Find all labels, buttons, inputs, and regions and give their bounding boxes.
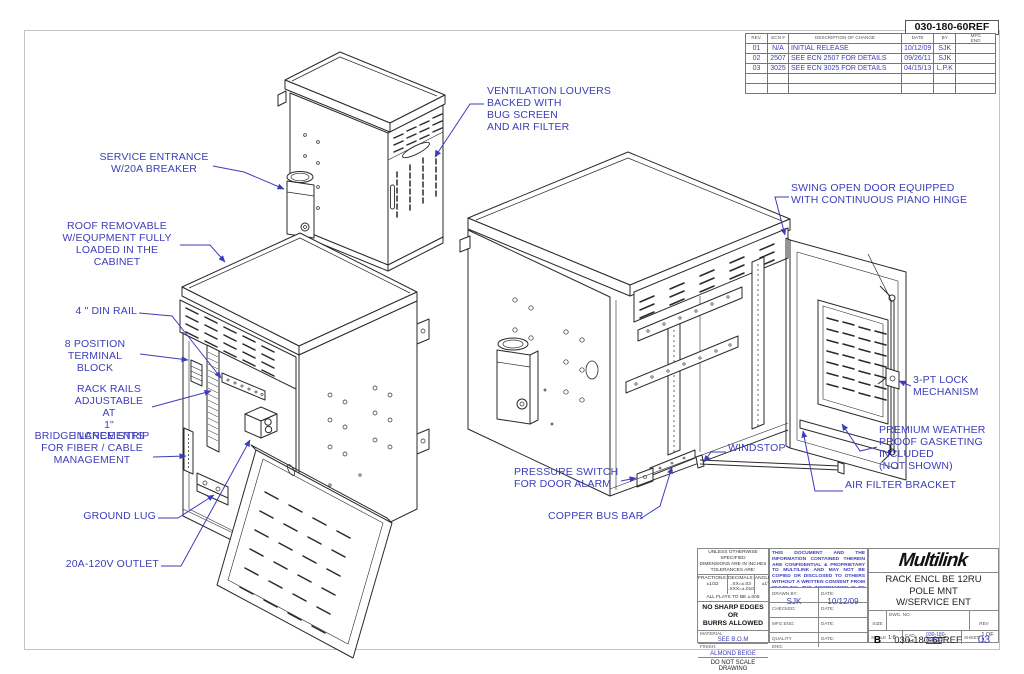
- pole-mount-bracket: [417, 429, 429, 454]
- checked-label: CHECKED:: [772, 606, 796, 611]
- rev-label: REV: [979, 621, 988, 626]
- rev-cell: 03: [746, 64, 768, 74]
- material-value: SEE B.O.M: [700, 637, 766, 644]
- desc-cell: SEE ECN 3025 FOR DETAILS: [789, 64, 902, 74]
- drawing-sheet: { "colors": { "callout_blue": "#3d3dba",…: [0, 0, 1024, 663]
- date-cell: [902, 74, 934, 84]
- leader-pressure-switch: [621, 478, 636, 481]
- ecn-cell: 3025: [768, 64, 789, 74]
- callout-swing-door: SWING OPEN DOOR EQUIPPED WITH CONTINUOUS…: [791, 183, 1006, 207]
- do-not-scale-note: DO NOT SCALE DRAWING: [698, 657, 768, 674]
- by-cell: SJK: [934, 54, 956, 64]
- table-row: [746, 74, 996, 84]
- ecn-cell: [768, 84, 789, 94]
- desc-cell: SEE ECN 2507 FOR DETAILS: [789, 54, 902, 64]
- callout-pressure-switch: PRESSURE SWITCH FOR DOOR ALARM: [514, 467, 619, 491]
- copper-bus-bar: [650, 450, 695, 476]
- by-cell: SJK: [934, 44, 956, 54]
- callout-bridge-lance: BRIDGE LANCE STRIP FOR FIBER / CABLE MAN…: [33, 431, 151, 467]
- leader-ground-lug: [158, 495, 214, 518]
- date-cell: 04/15/13: [902, 64, 934, 74]
- rev-cell: [746, 74, 768, 84]
- tolerance-grid: FRACTIONS: ±1/32 DECIMALS: .XX=±.03 .XXX…: [698, 574, 768, 594]
- title-block: Multilink RACK ENCL BE 12RU POLE MNT W/S…: [868, 548, 999, 643]
- rev-cell: 01: [746, 44, 768, 54]
- date-label: DATE:: [821, 621, 834, 626]
- callout-copper-bus-bar: COPPER BUS BAR: [548, 511, 648, 523]
- tolerance-header: UNLESS OTHERWISE SPECIFIED DIMENSIONS AR…: [698, 549, 768, 574]
- din-rail: [626, 336, 738, 393]
- desc-cell: INITIAL RELEASE: [789, 44, 902, 54]
- dwg-no-label: DWG. NO.: [889, 612, 911, 617]
- mfg-cell: [956, 74, 996, 84]
- rev-cell: [746, 84, 768, 94]
- callout-ground-lug: GROUND LUG: [80, 511, 156, 523]
- windstop-bar: [696, 455, 844, 474]
- callout-windstop: WINDSTOP: [728, 443, 803, 455]
- material-label: MATERIAL:: [700, 631, 724, 636]
- bridge-lance-strip: [184, 428, 193, 474]
- callout-gasketing: PREMIUM WEATHER PROOF GASKETING INCLUDED…: [879, 425, 991, 472]
- ecn-cell: [768, 74, 789, 84]
- dwg-no-value: 030-180-60REF: [894, 635, 962, 646]
- col-desc: DESCRIPTION OF CHANGE: [789, 34, 902, 44]
- flats-note: ALL FLATS TO BE ±.005: [698, 594, 768, 601]
- tolerance-notes-block: UNLESS OTHERWISE SPECIFIED DIMENSIONS AR…: [697, 548, 769, 643]
- revision-table-header: REV. ECN # DESCRIPTION OF CHANGE DATE BY…: [746, 34, 996, 44]
- table-row: 02 2507 SEE ECN 2507 FOR DETAILS 09/26/1…: [746, 54, 996, 64]
- col-ecn: ECN #: [768, 34, 789, 44]
- mfg-cell: [956, 44, 996, 54]
- leader-terminal: [140, 354, 188, 360]
- cabinet-view-open-front: [180, 233, 429, 658]
- checked-row: CHECKED: DATE:: [770, 603, 867, 618]
- mfg-cell: [956, 64, 996, 74]
- pressure-switch: [637, 468, 653, 487]
- drawing-title-row: RACK ENCL BE 12RU POLE MNT W/SERVICE ENT: [869, 573, 998, 611]
- pole-mount-bracket: [417, 319, 429, 344]
- leader-rack-rails: [152, 391, 211, 407]
- confidentiality-notice: THIS DOCUMENT AND THE INFORMATION CONTAI…: [770, 549, 867, 588]
- material-row: MATERIAL: SEE B.O.M: [698, 630, 768, 644]
- size-label: SIZE: [872, 621, 882, 626]
- logo-row: Multilink: [869, 549, 998, 573]
- by-cell: L.P.K: [934, 64, 956, 74]
- date-label: DATE:: [821, 606, 834, 611]
- outlet-box: [245, 407, 277, 438]
- tolerance-fractions: FRACTIONS: ±1/32: [698, 575, 727, 594]
- by-cell: [934, 74, 956, 84]
- callout-service-entrance: SERVICE ENTRANCE W/20A BREAKER: [95, 152, 213, 176]
- tolerance-decimals: DECIMALS: .XX=±.03 .XXX=±.010: [727, 575, 754, 594]
- ecn-cell: 2507: [768, 54, 789, 64]
- desc-cell: [789, 84, 902, 94]
- drawn-by-label: DRAWN BY:: [772, 591, 798, 596]
- quality-eng-label: QUALITY ENG:: [772, 636, 792, 649]
- callout-roof-removable: ROOF REMOVABLE W/EQUPMENT FULLY LOADED I…: [55, 221, 179, 268]
- drawn-by-row: DRAWN BY:SJK DATE:10/12/09: [770, 588, 867, 603]
- finish-label: FINISH:: [700, 644, 716, 649]
- leader-bridge-lance: [153, 456, 186, 457]
- leader-roof: [180, 245, 225, 262]
- table-row: 01 N/A INITIAL RELEASE 10/12/09 SJK: [746, 44, 996, 54]
- door-handle: [391, 185, 395, 209]
- col-rev: REV.: [746, 34, 768, 44]
- callout-terminal-block: 8 POSITION TERMINAL BLOCK: [52, 339, 138, 375]
- date-label: DATE:: [821, 636, 834, 641]
- col-date: DATE: [902, 34, 934, 44]
- finish-row: FINISH: ALMOND BEIGE: [698, 643, 768, 657]
- drawing-info-row: SIZE B DWG. NO. 030-180-60REF REV 03: [869, 611, 998, 631]
- by-cell: [934, 84, 956, 94]
- col-by: BY: [934, 34, 956, 44]
- no-sharp-edges-note: NO SHARP EDGES OR BURRS ALLOWED: [698, 601, 768, 629]
- mfg-eng-row: MFG ENG: DATE:: [770, 618, 867, 633]
- terminal-block: [191, 360, 202, 386]
- leader-service-entrance: [213, 166, 284, 189]
- rack-rail: [207, 345, 219, 452]
- air-filter-panel: [818, 300, 888, 424]
- date-label: DATE:: [821, 591, 834, 596]
- din-rail: [222, 373, 265, 400]
- date-cell: 10/12/09: [902, 44, 934, 54]
- signoff-block: THIS DOCUMENT AND THE INFORMATION CONTAI…: [769, 548, 868, 643]
- date-cell: [902, 84, 934, 94]
- date-cell: 09/26/11: [902, 54, 934, 64]
- quality-eng-row: QUALITY ENG: DATE:: [770, 633, 867, 647]
- finish-value: ALMOND BEIGE: [700, 651, 766, 658]
- mfg-eng-label: MFG ENG:: [772, 621, 795, 626]
- col-mfg: MFG ENG: [956, 34, 996, 44]
- callout-lock-mechanism: 3-PT LOCK MECHANISM: [913, 375, 998, 399]
- ecn-cell: N/A: [768, 44, 789, 54]
- callout-din-rail: 4 " DIN RAIL: [75, 306, 137, 318]
- rev-value: 03: [978, 634, 990, 646]
- table-row: [746, 84, 996, 94]
- mfg-cell: [956, 54, 996, 64]
- callout-ventilation-louvers: VENTILATION LOUVERS BACKED WITH BUG SCRE…: [487, 86, 632, 133]
- rack-rail: [752, 257, 764, 429]
- rack-rail: [668, 323, 680, 455]
- table-row: 03 3025 SEE ECN 3025 FOR DETAILS 04/15/1…: [746, 64, 996, 74]
- callout-outlet: 20A-120V OUTLET: [60, 559, 159, 571]
- drawing-title: RACK ENCL BE 12RU POLE MNT W/SERVICE ENT: [885, 574, 981, 609]
- desc-cell: [789, 74, 902, 84]
- callout-air-filter-bracket: AIR FILTER BRACKET: [845, 480, 965, 492]
- mfg-cell: [956, 84, 996, 94]
- rev-cell: 02: [746, 54, 768, 64]
- multilink-logo: Multilink: [898, 549, 968, 572]
- size-value: B: [874, 635, 881, 646]
- revision-table: REV. ECN # DESCRIPTION OF CHANGE DATE BY…: [745, 33, 996, 94]
